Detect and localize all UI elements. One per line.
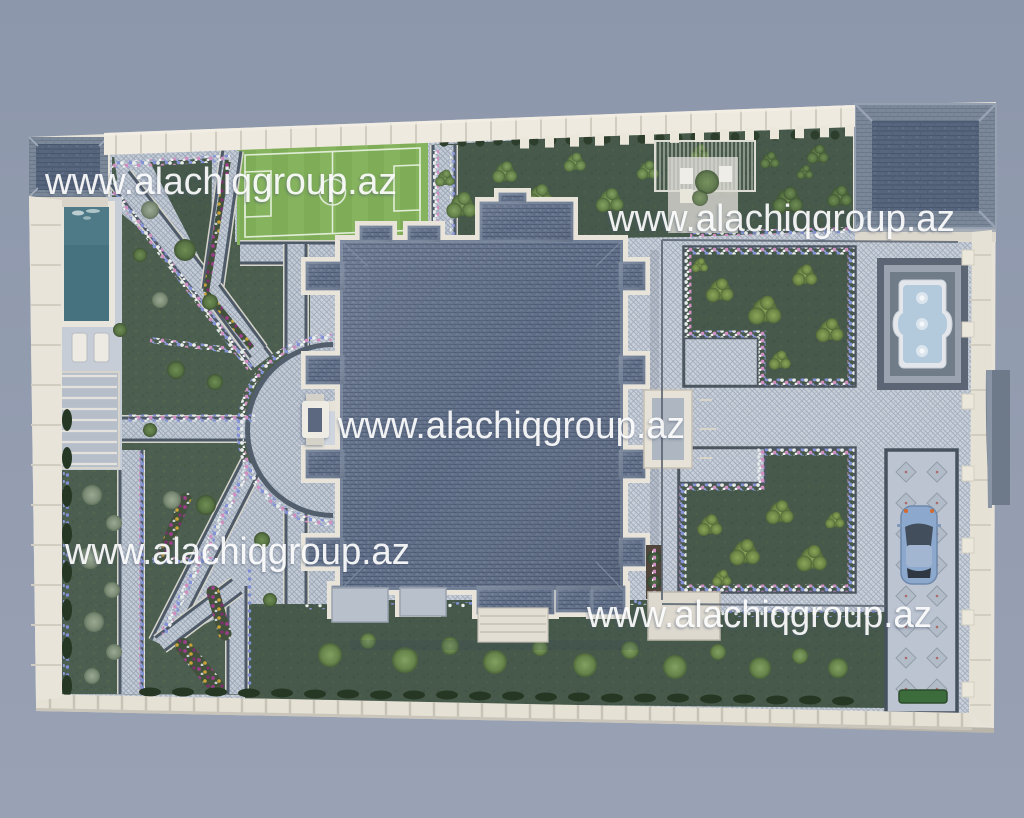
svg-text:www.alachiqgroup.az: www.alachiqgroup.az xyxy=(337,405,685,447)
svg-text:www.alachiqgroup.az: www.alachiqgroup.az xyxy=(607,198,955,240)
svg-text:www.alachiqgroup.az: www.alachiqgroup.az xyxy=(586,594,932,636)
svg-text:www.alachiqgroup.az: www.alachiqgroup.az xyxy=(64,531,410,573)
svg-text:www.alachiqgroup.az: www.alachiqgroup.az xyxy=(44,161,397,203)
